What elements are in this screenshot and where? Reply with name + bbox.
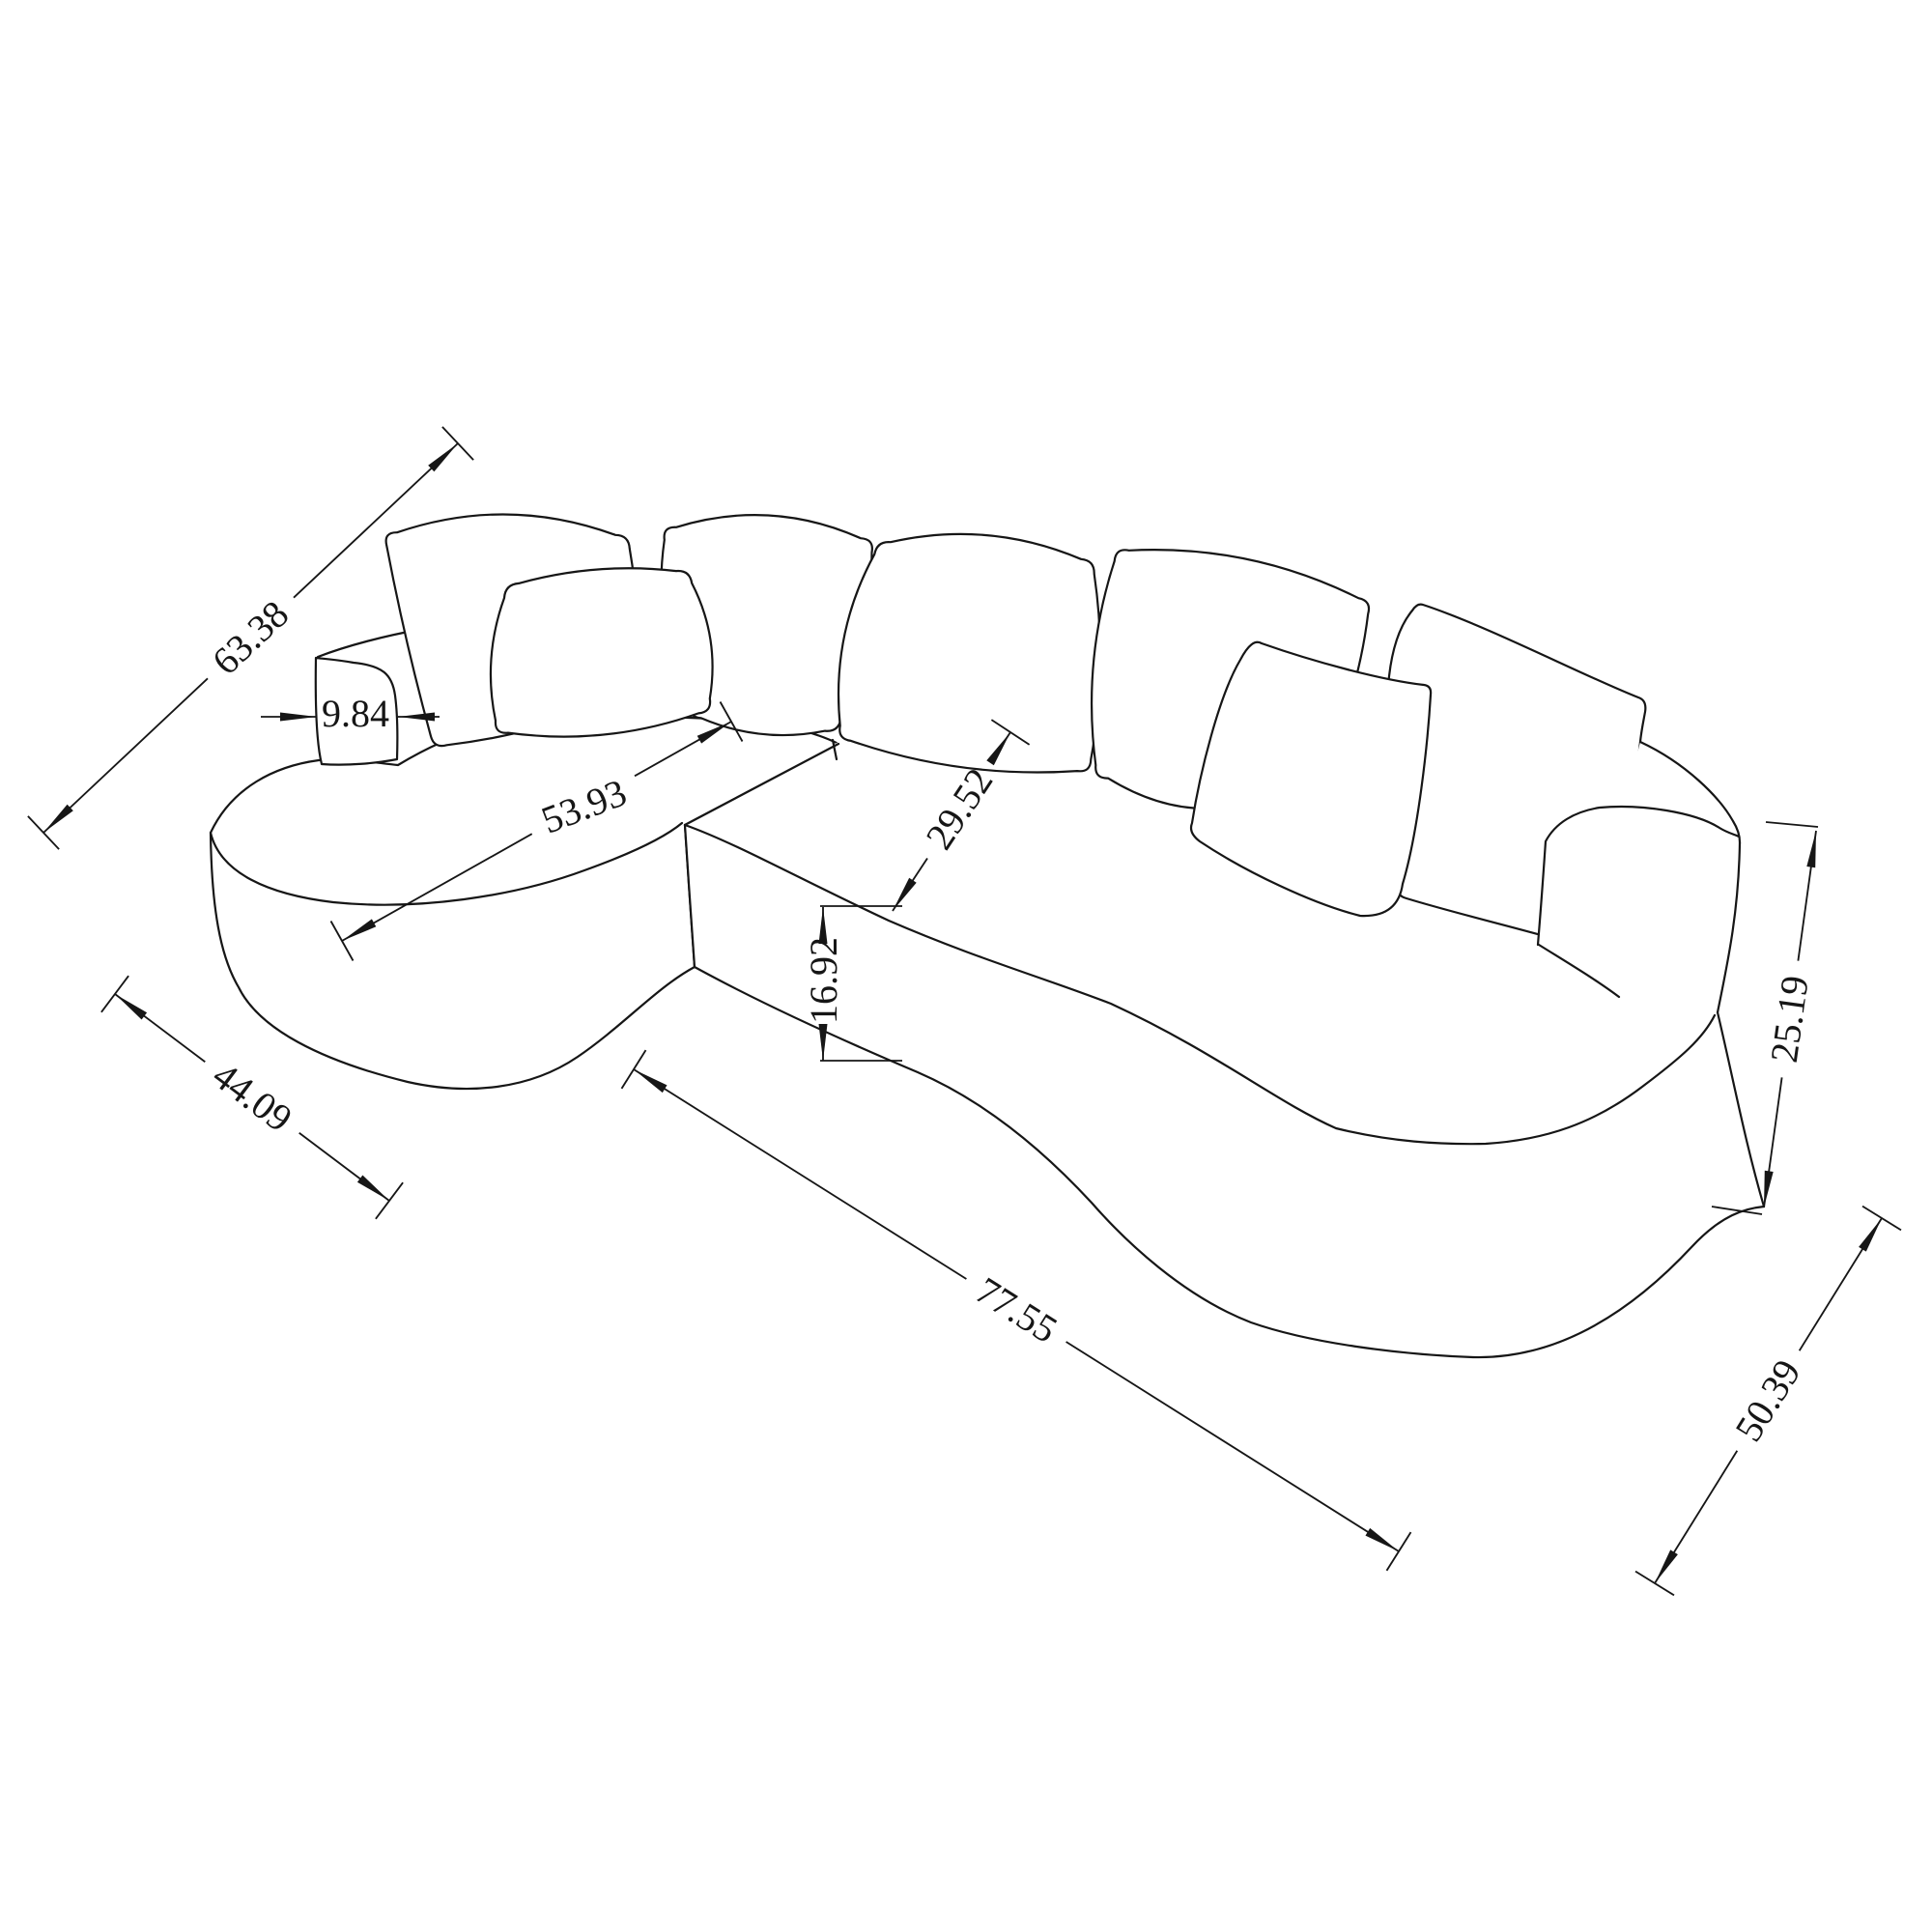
- svg-text:16.92: 16.92: [802, 937, 845, 1024]
- svg-text:9.84: 9.84: [322, 692, 389, 735]
